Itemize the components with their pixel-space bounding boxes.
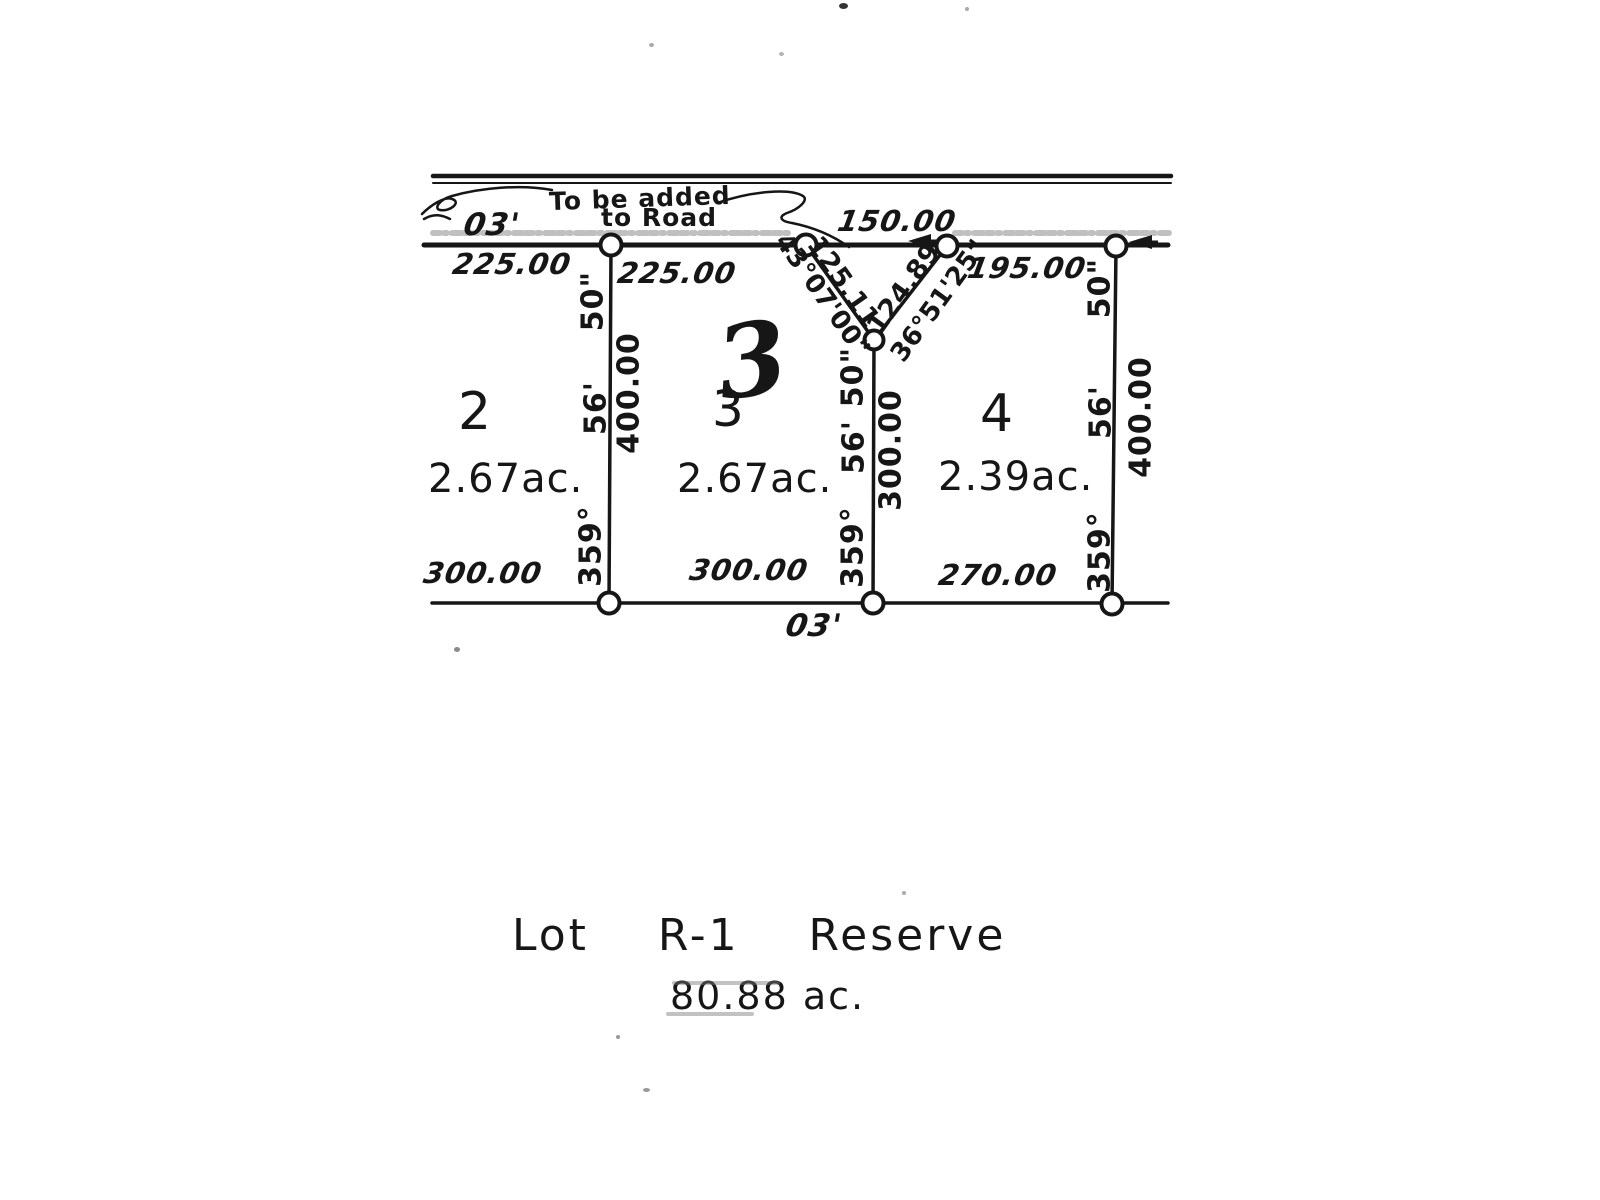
lot3-area: 2.67ac. <box>677 456 832 502</box>
lot3-frontage: 225.00 <box>615 256 739 290</box>
left-boundary-bearing-min: 56' <box>579 381 614 435</box>
right-boundary-bearing-sec: 50" <box>1083 258 1118 318</box>
scan-speck <box>965 7 969 11</box>
monument-circle <box>863 593 884 614</box>
middle-boundary-depth: 300.00 <box>874 389 909 511</box>
monument-circle <box>1106 236 1127 257</box>
lot4-rear: 270.00 <box>936 558 1060 592</box>
lot4-number: 4 <box>980 384 1013 444</box>
plat-scan-page: To be added to Road 03' 225.00 225.00 15… <box>0 0 1600 1200</box>
road-bearing-min-left: 03' <box>461 207 523 243</box>
scan-speck <box>649 43 654 47</box>
scan-speck <box>643 1088 650 1092</box>
scan-smudge-line <box>666 1012 754 1016</box>
scan-speck <box>616 1035 620 1039</box>
right-boundary-bearing-min: 56' <box>1084 385 1119 439</box>
middle-boundary-bearing-min: 56' <box>837 420 872 474</box>
right-boundary-depth: 400.00 <box>1124 356 1159 478</box>
scan-speck <box>779 52 784 56</box>
rear-bearing-min: 03' <box>783 608 845 644</box>
road-gap-distance: 150.00 <box>835 204 959 238</box>
scan-speck <box>454 647 460 652</box>
lot3-rear: 300.00 <box>687 553 811 587</box>
reserve-title: Lot R-1 Reserve <box>512 910 1006 961</box>
lot4-area: 2.39ac. <box>938 454 1093 500</box>
lot2-number: 2 <box>458 382 491 442</box>
left-boundary-bearing-sec: 50" <box>576 271 611 331</box>
scan-speck <box>902 891 906 895</box>
left-boundary-depth: 400.00 <box>612 332 647 454</box>
road-note-line2: to Road <box>601 203 717 232</box>
middle-boundary-bearing-deg: 359° <box>836 506 871 588</box>
monument-circle <box>601 235 622 256</box>
monument-circle <box>599 593 620 614</box>
lot3-number: 3 <box>712 380 744 438</box>
left-boundary-bearing-deg: 359° <box>574 505 609 587</box>
scan-speck <box>839 3 848 9</box>
lot2-area: 2.67ac. <box>428 456 583 502</box>
lot2-rear: 300.00 <box>421 556 545 590</box>
right-boundary-bearing-deg: 359° <box>1083 511 1118 593</box>
plat-linework <box>0 0 1600 1200</box>
lot2-frontage: 225.00 <box>450 247 574 281</box>
leader-squiggle-left-tail <box>424 215 450 219</box>
monument-circle <box>1102 594 1123 615</box>
scan-smudge-line <box>672 981 780 985</box>
